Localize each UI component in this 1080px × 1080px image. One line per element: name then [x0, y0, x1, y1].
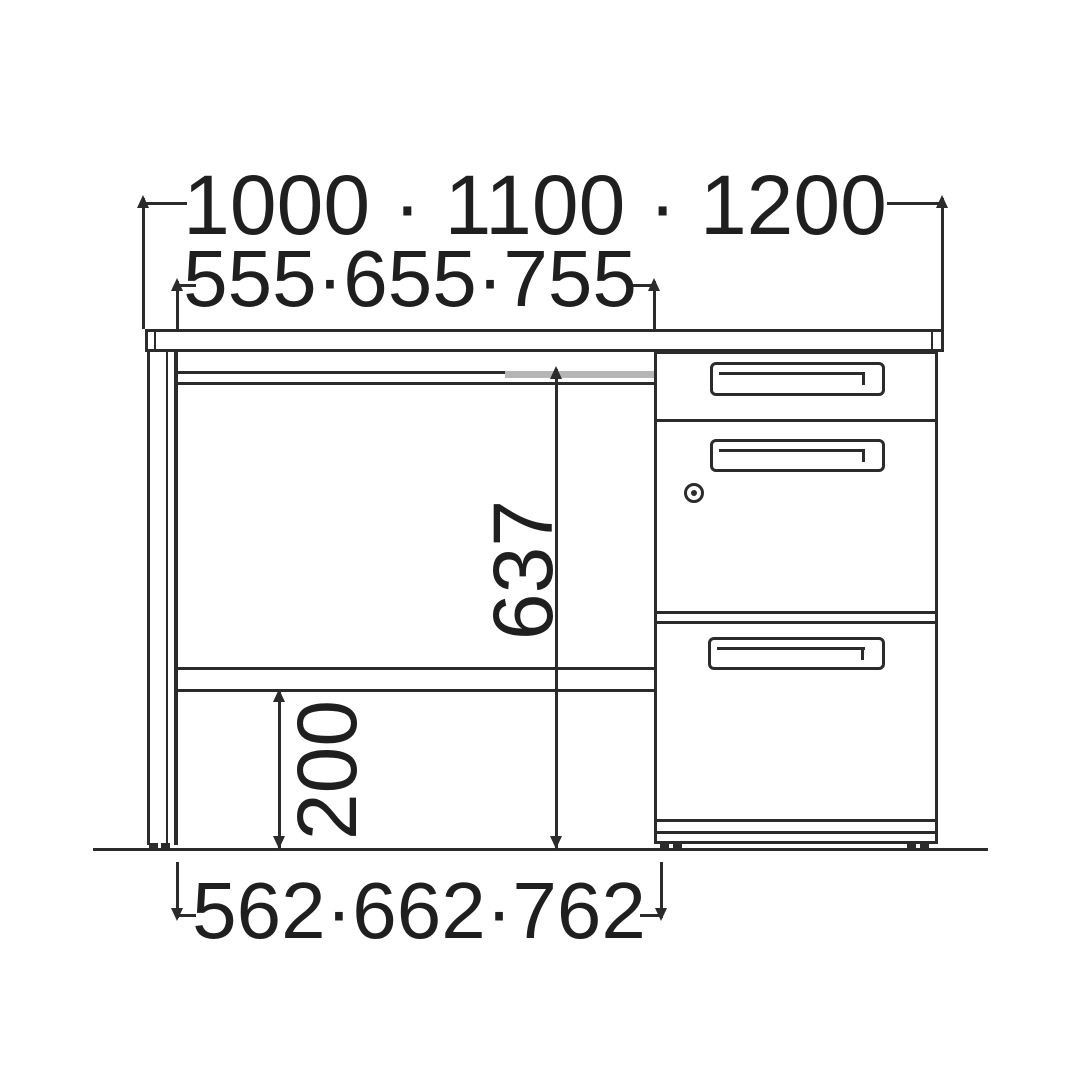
dim-inner-width-label: 555·655·755	[183, 239, 637, 319]
ground-line	[93, 848, 988, 851]
drawer-handle-1	[710, 362, 885, 396]
drawer-divider-1	[656, 419, 936, 422]
drawer-handle-2-hook	[862, 449, 865, 462]
lower-panel-bottom-line	[176, 689, 656, 692]
dim-overall-width-line-right	[887, 202, 943, 205]
dim-overall-width-ext-left	[142, 198, 145, 329]
dim-height-main-label: 637	[481, 500, 565, 640]
drawer-handle-1-lip	[719, 372, 865, 375]
desk-top-edge-left	[154, 332, 156, 349]
desk-top-edge-right	[931, 332, 933, 349]
dim-overall-width-ext-right	[941, 198, 944, 329]
drawer-handle-3-hook	[861, 647, 864, 660]
side-panel-inner-line	[174, 351, 178, 845]
foot-glide-pedestal-left-2	[673, 843, 682, 851]
dim-height-lower-label: 200	[285, 700, 369, 840]
drawer-pedestal	[654, 351, 938, 844]
dim-overall-width-line-left	[143, 202, 187, 205]
drawer-divider-2a	[656, 611, 936, 614]
drawer-handle-3	[708, 637, 885, 670]
side-panel-outer-line	[147, 351, 150, 845]
dim-height-main-arrow-bottom	[550, 836, 562, 849]
keyhole-center	[691, 490, 697, 496]
foot-glide-pedestal-left-1	[660, 843, 669, 851]
desk-top	[145, 329, 944, 352]
foot-glide-pedestal-right-1	[907, 843, 916, 851]
plinth-line-1	[656, 819, 936, 822]
side-panel-mid-line	[166, 351, 168, 845]
dim-height-main-arrow-top	[550, 366, 562, 379]
front-rail-bottom-line	[176, 382, 657, 385]
dim-bottom-width-label: 562·662·762	[192, 871, 646, 951]
drawer-handle-1-hook	[862, 372, 865, 385]
lower-panel-top-line	[176, 667, 656, 670]
front-rail-top-line	[176, 371, 507, 374]
plinth-line-2	[656, 831, 936, 834]
foot-glide-pedestal-right-2	[920, 843, 929, 851]
drawer-handle-2-lip	[719, 449, 865, 452]
drawer-divider-2b	[656, 621, 936, 624]
drawer-handle-2	[710, 439, 885, 472]
foot-glide-leg-2	[161, 843, 170, 851]
drawer-handle-3-lip	[717, 647, 865, 650]
desk-dimension-diagram: 1000 · 1100 · 1200 555·655·755 637 200 5…	[0, 0, 1080, 1080]
foot-glide-leg-1	[149, 843, 158, 851]
front-rail-highlight	[505, 371, 655, 378]
